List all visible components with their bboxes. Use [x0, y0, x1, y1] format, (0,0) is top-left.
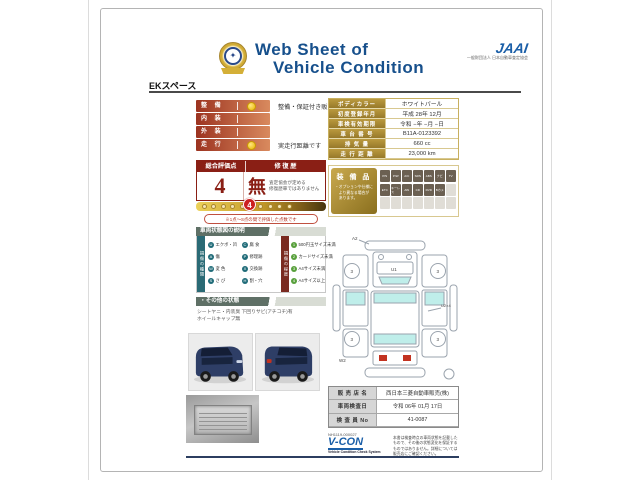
- fine-emblem-icon: ✦: [219, 42, 247, 80]
- degree-mark: 2: [291, 254, 297, 260]
- legend-item: C腐 食: [242, 239, 278, 251]
- condition-row-maintenance: 整 備 整備・保証付き販売です: [196, 100, 326, 112]
- divider: [237, 115, 238, 123]
- divider: [237, 141, 238, 149]
- scale-dot: [202, 204, 207, 209]
- type-text: 交換跡: [250, 266, 263, 272]
- repair-history: 無 査定協会が定める 修復歴車ではありません: [244, 172, 325, 200]
- sheet-title-line2: Vehicle Condition: [273, 58, 424, 78]
- legend-item: 1500円玉サイズ未満: [291, 239, 336, 251]
- condition-row-mileage: 走 行 実走行距離です: [196, 139, 326, 151]
- scale-dot: [230, 204, 235, 209]
- type-text: さ び: [216, 278, 226, 284]
- legend-header: 車両状態図の説明: [196, 227, 326, 236]
- info-value: 平成 28年 12月: [385, 109, 458, 119]
- score-marker: 4: [243, 198, 256, 211]
- screen: ✦ Web Sheet of Vehicle Condition JAAI 一般…: [0, 0, 640, 480]
- condition-label: 走 行: [196, 139, 270, 151]
- table-row: 車 台 番 号B11A-0123392: [329, 129, 458, 139]
- scale-dot: [211, 204, 216, 209]
- info-label: 車検有効期限: [329, 119, 385, 129]
- equipment-badge: P/W: [391, 170, 401, 182]
- info-value: ホワイトパール: [385, 99, 458, 109]
- degree-text: カードサイズ未満: [299, 254, 333, 260]
- legend-item: A傷: [208, 251, 242, 263]
- condition-label: 整 備: [196, 100, 270, 112]
- condition-row-exterior: 外 装: [196, 126, 326, 138]
- repair-note-line2: 修復歴車ではありません: [269, 186, 319, 191]
- emblem-star-icon: ✦: [224, 47, 242, 65]
- info-label: 車 台 番 号: [329, 129, 385, 139]
- damage-label-rear: W2: [339, 358, 346, 363]
- jaai-subtitle: 一般財団法人 日本自動車査定協会: [467, 55, 528, 61]
- info-label: 走 行 距 離: [329, 149, 385, 159]
- legend-item: 3A4サイズ未満: [291, 263, 336, 275]
- repair-header: 修 復 歴: [246, 161, 325, 172]
- equipment-badge: ETC: [380, 184, 390, 196]
- table-row: 初度登録年月平成 28年 12月: [329, 109, 458, 119]
- equipment-title-cell: 装 備 品 ・オプションや仕様に より異なる場合が あります。: [331, 168, 377, 214]
- scale-dot: [221, 204, 226, 209]
- evaluation-header: 総合評価点 修 復 歴: [197, 161, 325, 172]
- degree-mark: 1: [291, 242, 297, 248]
- scale-dot: [268, 204, 273, 209]
- id-plate-photo: [186, 395, 259, 443]
- dealer-label: 車両検査日: [329, 400, 376, 413]
- dealer-label: 販 売 店 名: [329, 387, 376, 400]
- equipment-note-line: ・オプションや仕様に: [335, 185, 377, 191]
- legend-item: Uエクボ・凹: [208, 239, 242, 251]
- dealer-value: 41-0087: [376, 414, 458, 427]
- damage-type-header: 損傷の種類: [197, 236, 205, 292]
- id-plate: [194, 405, 252, 435]
- equipment-section: 装 備 品 ・オプションや仕様に より異なる場合が あります。 P/S P/W …: [328, 165, 459, 217]
- info-value: 令和 −年 −月 −日: [385, 119, 458, 129]
- type-text: 腐 食: [250, 242, 260, 248]
- scale-dot: [287, 204, 292, 209]
- repair-note: 査定協会が定める 修復歴車ではありません: [269, 180, 319, 193]
- vehicle-damage-diagram: A2 U1 U2×4 W2 3 3 3 3: [331, 235, 459, 381]
- status-dot-icon: [247, 141, 256, 150]
- equipment-badge-empty: [446, 184, 456, 196]
- degree-mark: 4: [291, 278, 297, 284]
- frame-line-right: [551, 0, 552, 480]
- equipment-badge-empty: [402, 197, 412, 209]
- dealer-info-table: 販 売 店 名西日本三菱自動車販売(株) 車両検査日令和 06年 01月 17日…: [328, 386, 459, 428]
- other-condition-header: ・その他の状態: [196, 297, 326, 306]
- condition-label: 内 装: [196, 113, 270, 125]
- car-front-illustration: [189, 334, 252, 390]
- degree-mark: 3: [291, 266, 297, 272]
- other-condition-line1: シートヤニ・内装臭 下回りサビ(アチコチ)有: [197, 309, 293, 316]
- table-row: 車両検査日令和 06年 01月 17日: [329, 400, 458, 413]
- scale-dot: [258, 204, 263, 209]
- divider: [237, 128, 238, 136]
- equipment-badge: TV: [446, 170, 456, 182]
- model-underline: [149, 91, 521, 93]
- equipment-badge: DVD: [424, 184, 434, 196]
- vcon-logo: V-CON: [328, 437, 363, 450]
- id-plate-etching: [199, 410, 247, 430]
- damage-degree-header: 損傷の程度: [281, 236, 289, 292]
- car-photo-rear: [255, 333, 320, 391]
- disclaimer-text: 本書は検査時点の車両状態を記載した もので、その後の状態変化を保証する ものでは…: [393, 436, 461, 457]
- info-label: ボディカラー: [329, 99, 385, 109]
- disclaimer-line: もので、その後の状態変化を保証する: [393, 441, 461, 446]
- equipment-badge: P/S: [380, 170, 390, 182]
- car-photo-front: [188, 333, 253, 391]
- legend-section: 車両状態図の説明 損傷の種類 Uエクボ・凹 A傷 W変 色 Sさ び C腐 食 …: [196, 227, 326, 293]
- condition-label-text: 走 行: [196, 139, 237, 151]
- legend-item: 2カードサイズ未満: [291, 251, 336, 263]
- other-condition-line2: ホイールキャップ無: [197, 316, 293, 323]
- table-row: 検 査 員 No41-0087: [329, 414, 458, 427]
- equipment-badge-empty: [435, 197, 445, 209]
- damage-label-front: A2: [352, 236, 358, 241]
- info-value: 23,000 km: [385, 149, 458, 159]
- table-row: 排 気 量660 cc: [329, 139, 458, 149]
- status-dot-icon: [247, 102, 256, 111]
- damage-type-list: Uエクボ・凹 A傷 W変 色 Sさ び C腐 食 P修理跡 X交換跡 H割・穴: [205, 236, 281, 292]
- emblem-ribbon: [221, 68, 245, 74]
- equipment-badge-empty: [391, 197, 401, 209]
- type-text: 変 色: [216, 266, 226, 272]
- type-mark: H: [242, 278, 248, 284]
- equipment-badge: ABS: [424, 170, 434, 182]
- damage-label-side: U2×4: [441, 303, 451, 308]
- legend-item: X交換跡: [242, 263, 278, 275]
- car-rear-illustration: [256, 334, 319, 390]
- info-value: B11A-0123392: [385, 129, 458, 139]
- equipment-note-line: あります。: [335, 196, 377, 202]
- damage-label-hood: U1: [391, 267, 397, 272]
- other-condition-text: シートヤニ・内装臭 下回りサビ(アチコチ)有 ホイールキャップ無: [197, 309, 293, 323]
- condition-label-text: 内 装: [196, 113, 237, 125]
- dealer-value: 令和 06年 01月 17日: [376, 400, 458, 413]
- legend-item: P修理跡: [242, 251, 278, 263]
- condition-label-text: 整 備: [196, 100, 237, 112]
- score-header: 総合評価点: [197, 161, 246, 172]
- jaai-logo: JAAI: [495, 40, 529, 56]
- degree-text: A4サイズ未満: [299, 266, 326, 272]
- type-text: 修理跡: [250, 254, 263, 260]
- legend-item: Sさ び: [208, 275, 242, 287]
- type-mark: W: [208, 266, 214, 272]
- legend-item: 4A4サイズ以上: [291, 275, 336, 287]
- repair-note-line1: 査定協会が定める: [269, 180, 306, 185]
- legend-item: W変 色: [208, 263, 242, 275]
- equipment-badge: ナビ: [435, 170, 445, 182]
- info-value: 660 cc: [385, 139, 458, 149]
- condition-row-interior: 内 装: [196, 113, 326, 125]
- table-row: 車検有効期限令和 −年 −月 −日: [329, 119, 458, 129]
- equipment-badge: SRS: [413, 170, 423, 182]
- table-row: ボディカラーホワイトパール: [329, 99, 458, 109]
- degree-text: A4サイズ以上: [299, 278, 326, 284]
- repair-value: 無: [248, 173, 266, 199]
- legend-body: 損傷の種類 Uエクボ・凹 A傷 W変 色 Sさ び C腐 食 P修理跡 X交換跡…: [196, 236, 326, 293]
- score-scale-bar: [196, 202, 326, 211]
- condition-label: 外 装: [196, 126, 270, 138]
- equipment-badges: P/S P/W A/C SRS ABS ナビ TV ETC キーレス AW CD…: [380, 170, 458, 209]
- equipment-badge: A/C: [402, 170, 412, 182]
- equipment-badge: Bカメ: [435, 184, 445, 196]
- scale-note: ※1点〜S点の間で評価した点数です: [204, 214, 318, 224]
- type-text: 割・穴: [250, 278, 263, 284]
- info-label: 排 気 量: [329, 139, 385, 149]
- equipment-badge: CD: [413, 184, 423, 196]
- evaluation-body: 4 無 査定協会が定める 修復歴車ではありません: [197, 172, 325, 200]
- equipment-note: ・オプションや仕様に より異なる場合が あります。: [331, 185, 377, 202]
- table-row: 販 売 店 名西日本三菱自動車販売(株): [329, 387, 458, 400]
- equipment-badge-empty: [413, 197, 423, 209]
- condition-value: 実走行距離です: [270, 141, 321, 150]
- type-mark: P: [242, 254, 248, 260]
- dealer-label: 検 査 員 No: [329, 414, 376, 427]
- type-mark: C: [242, 242, 248, 248]
- type-text: エクボ・凹: [216, 242, 237, 248]
- table-row: 走 行 距 離23,000 km: [329, 149, 458, 159]
- equipment-badge-empty: [446, 197, 456, 209]
- divider: [237, 102, 238, 110]
- type-mark: S: [208, 278, 214, 284]
- equipment-title: 装 備 品: [331, 172, 377, 182]
- frame-line-left: [88, 0, 89, 480]
- info-label: 初度登録年月: [329, 109, 385, 119]
- vehicle-info-table: ボディカラーホワイトパール 初度登録年月平成 28年 12月 車検有効期限令和 …: [328, 98, 459, 160]
- footer-rule: [186, 456, 459, 458]
- evaluation-box: 総合評価点 修 復 歴 4 無 査定協会が定める 修復歴車ではありません: [196, 160, 326, 201]
- damage-degree-list: 1500円玉サイズ未満 2カードサイズ未満 3A4サイズ未満 4A4サイズ以上: [289, 236, 336, 292]
- type-mark: U: [208, 242, 214, 248]
- legend-item: H割・穴: [242, 275, 278, 287]
- dealer-value: 西日本三菱自動車販売(株): [376, 387, 458, 400]
- overall-score: 4: [197, 172, 244, 200]
- equipment-badge: キーレス: [391, 184, 401, 196]
- sheet-title-line1: Web Sheet of: [255, 40, 368, 60]
- scale-dot: [277, 204, 282, 209]
- type-mark: A: [208, 254, 214, 260]
- equipment-badge-empty: [424, 197, 434, 209]
- equipment-badge-empty: [380, 197, 390, 209]
- type-mark: X: [242, 266, 248, 272]
- condition-label-text: 外 装: [196, 126, 237, 138]
- type-text: 傷: [216, 254, 220, 260]
- equipment-badge: AW: [402, 184, 412, 196]
- vehicle-condition-sheet: ✦ Web Sheet of Vehicle Condition JAAI 一般…: [100, 8, 543, 472]
- vcon-subtitle: Vehicle Condition Check System: [328, 450, 381, 454]
